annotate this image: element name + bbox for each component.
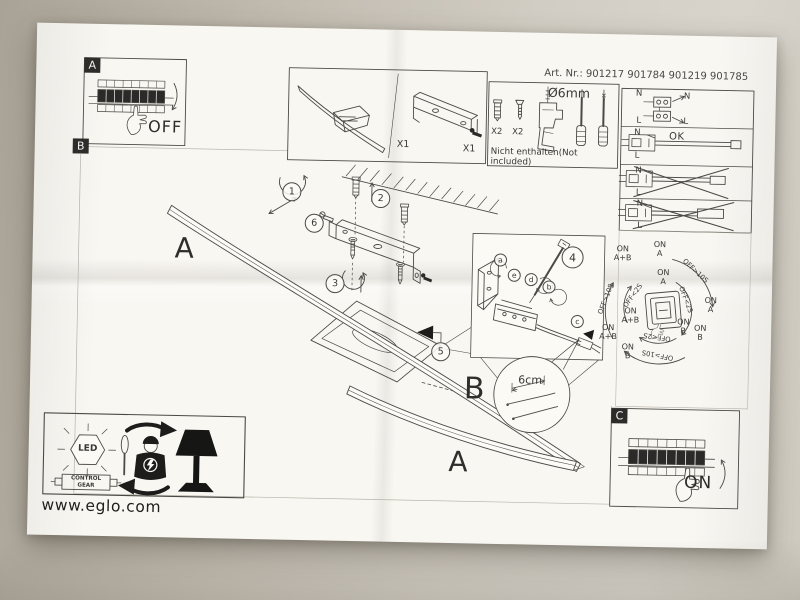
lamp-icon xyxy=(175,429,218,492)
drill-diameter: Ø6mm xyxy=(548,86,590,100)
ceiling-hatch xyxy=(346,165,500,211)
wire-ok: OK xyxy=(669,132,685,143)
wire-l: L xyxy=(683,118,688,127)
parts-box xyxy=(288,68,488,164)
state-on: ON xyxy=(684,474,712,493)
screw-qty: X2 xyxy=(512,128,523,137)
wiring-row-terminals xyxy=(643,96,684,123)
arm-label-a: A xyxy=(448,447,468,478)
mode-on-ab: ON A+B xyxy=(599,323,617,342)
wiring-row-wrong2 xyxy=(618,200,734,230)
mode-on-ab: ON A+B xyxy=(614,244,632,263)
led-label: LED xyxy=(78,445,98,455)
lamp-part xyxy=(297,86,386,153)
section-tag-c: C xyxy=(611,408,627,423)
section-tag-b: B xyxy=(73,138,89,153)
screw-item xyxy=(515,100,523,119)
wire-n: N xyxy=(637,200,644,209)
website: www.eglo.com xyxy=(41,497,161,516)
wire-n: N xyxy=(634,129,641,138)
mode-on-a: ON A xyxy=(653,240,666,259)
wire-l: L xyxy=(636,117,641,126)
mode-on-a: ON A xyxy=(704,296,717,315)
mode-on-ab: ON A+B xyxy=(621,306,639,325)
photo-background: Art. Nr.: 901217 901784 901219 901785 A … xyxy=(0,0,800,600)
strip-length: 6cm xyxy=(518,374,542,386)
wire-l: L xyxy=(636,189,641,198)
wire-n: N xyxy=(684,93,691,102)
instruction-sheet: Art. Nr.: 901217 901784 901219 901785 A … xyxy=(27,23,777,550)
bracket-part xyxy=(413,92,478,133)
mode-on-b: ON B xyxy=(677,317,690,336)
control-gear-label: CONTROL GEAR xyxy=(62,474,110,490)
panel-c-diagram xyxy=(610,408,740,509)
screw-glyph xyxy=(470,128,483,138)
screw-glyph-dark xyxy=(421,273,432,282)
bracket-qty: X1 xyxy=(463,144,476,155)
wire-n: N xyxy=(635,167,642,176)
assembly-diagram xyxy=(268,163,500,295)
arm-label-a: A xyxy=(174,233,194,264)
cover-label-b: B xyxy=(464,373,485,406)
wire-l: L xyxy=(637,222,642,231)
not-included-caption: Nicht enthalten(Not included) xyxy=(490,148,616,170)
mounting-bracket xyxy=(328,220,421,284)
mode-on-b: ON B xyxy=(621,342,634,361)
wire-l: L xyxy=(635,152,640,161)
section-tag-a: A xyxy=(84,58,100,73)
wire-n: N xyxy=(636,90,643,99)
state-off: OFF xyxy=(148,118,182,136)
electrician-icon xyxy=(118,420,177,495)
mode-on-a: ON A xyxy=(657,268,670,287)
mode-on-b: ON B xyxy=(694,324,707,343)
anchor-qty: X2 xyxy=(491,128,502,137)
lamp-qty: X1 xyxy=(397,140,410,151)
